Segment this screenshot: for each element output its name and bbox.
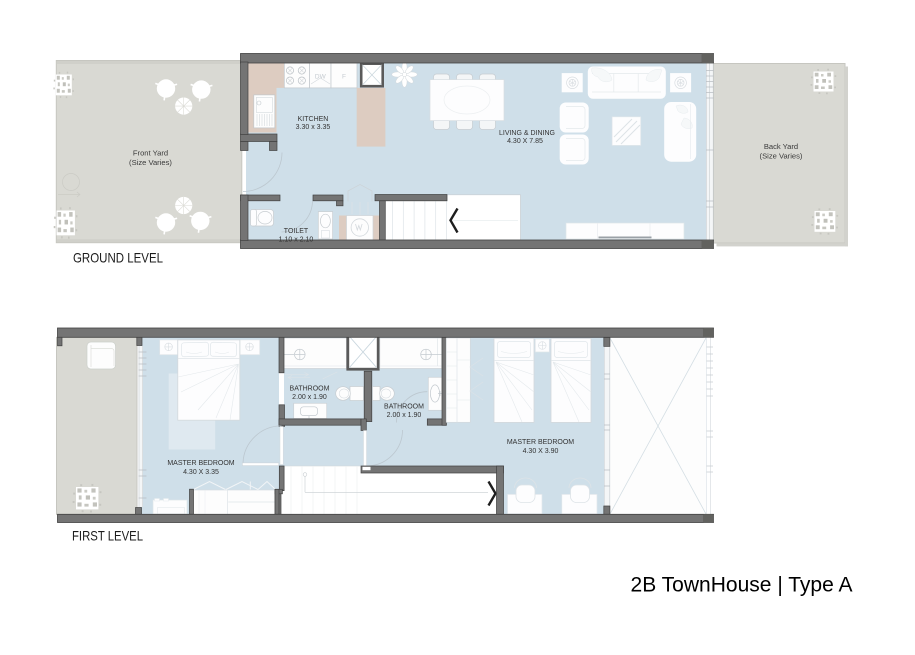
svg-text:LIVING & DINING: LIVING & DINING xyxy=(499,130,555,137)
svg-text:Back Yard: Back Yard xyxy=(764,142,798,151)
svg-text:TOILET: TOILET xyxy=(284,228,309,235)
svg-text:BATHROOM: BATHROOM xyxy=(290,385,330,392)
svg-text:(Size Varies): (Size Varies) xyxy=(129,158,172,167)
svg-text:BATHROOM: BATHROOM xyxy=(384,404,424,411)
svg-text:4.30 X 3.90: 4.30 X 3.90 xyxy=(523,448,559,455)
svg-text:MASTER BEDROOM: MASTER BEDROOM xyxy=(507,439,574,446)
svg-text:3.30 x 3.35: 3.30 x 3.35 xyxy=(296,124,331,131)
svg-text:2B TownHouse | Type A: 2B TownHouse | Type A xyxy=(631,573,854,597)
svg-text:4.30 X 7.85: 4.30 X 7.85 xyxy=(507,138,543,145)
svg-text:(Size Varies): (Size Varies) xyxy=(760,152,803,161)
svg-text:4.30 X 3.35: 4.30 X 3.35 xyxy=(183,469,219,476)
svg-text:KITCHEN: KITCHEN xyxy=(298,116,329,123)
svg-text:Front Yard: Front Yard xyxy=(133,149,168,158)
svg-text:GROUND LEVEL: GROUND LEVEL xyxy=(73,250,163,266)
svg-text:F: F xyxy=(342,74,346,81)
svg-text:1.10 x 2.10: 1.10 x 2.10 xyxy=(279,237,314,244)
svg-text:MASTER BEDROOM: MASTER BEDROOM xyxy=(167,460,234,467)
svg-text:DW: DW xyxy=(315,74,327,81)
svg-text:2.00 x 1.90: 2.00 x 1.90 xyxy=(292,394,327,401)
svg-text:2.00 x 1.90: 2.00 x 1.90 xyxy=(387,412,422,419)
svg-text:FIRST LEVEL: FIRST LEVEL xyxy=(72,528,143,544)
